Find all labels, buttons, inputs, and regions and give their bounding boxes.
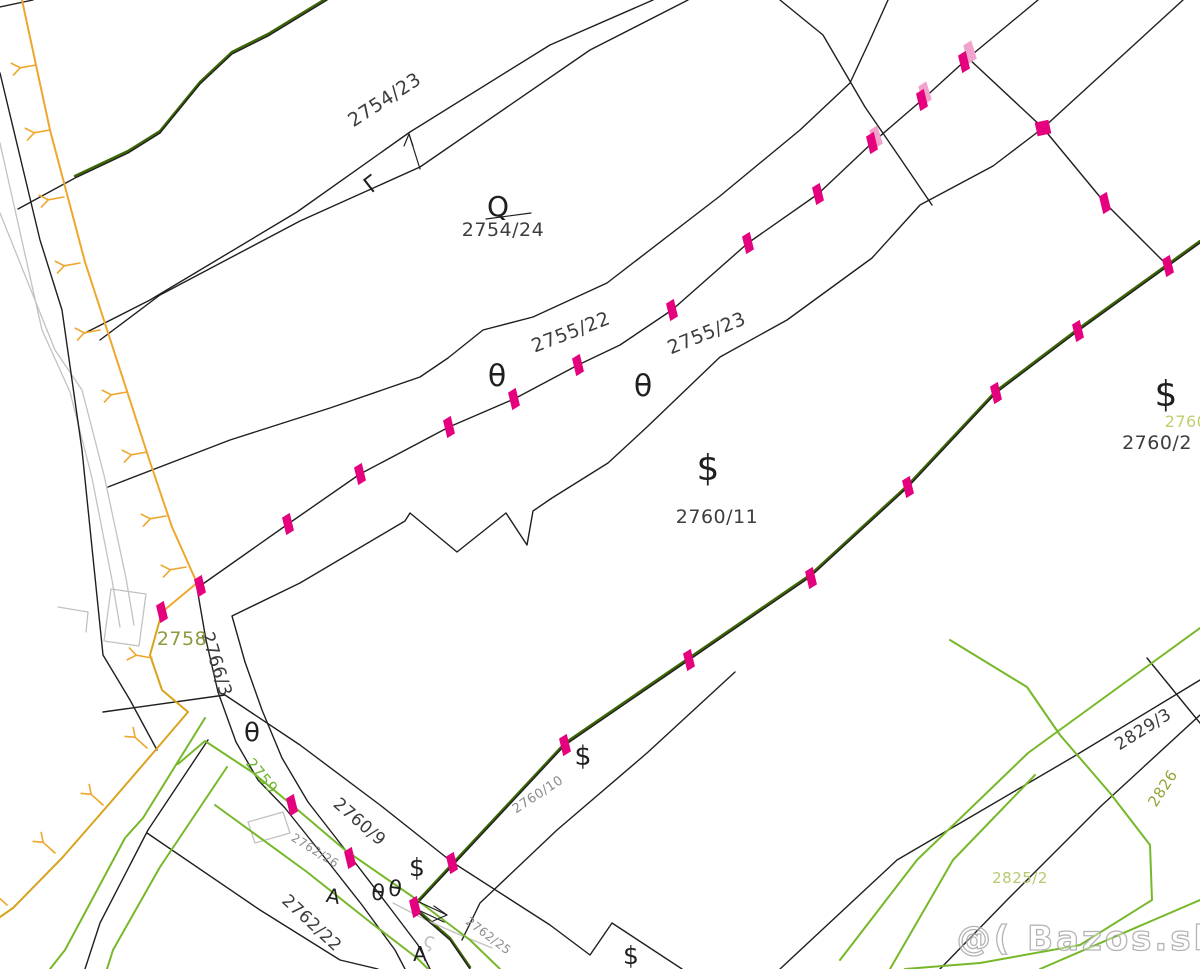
cadastral-map-view: θθθθθ$$$$$QΓAAς2754/232754/242755/222755… bbox=[0, 0, 1200, 969]
bazos-watermark: @( Bazos.sk bbox=[957, 919, 1200, 959]
dollar-symbol: $ bbox=[574, 741, 591, 772]
theta-symbol: θ bbox=[244, 718, 260, 748]
parcel-label-2754-24: 2754/24 bbox=[462, 219, 544, 241]
dollar-symbol: $ bbox=[623, 941, 639, 969]
parcel-label-2760-11: 2760/11 bbox=[676, 506, 758, 528]
parcel-label-2758: 2758 bbox=[157, 628, 207, 650]
parcel-label-2760-2: 2760/2 bbox=[1122, 432, 1192, 454]
parcel-label-2760: 2760 bbox=[1165, 412, 1200, 431]
theta-symbol: θ bbox=[488, 359, 506, 394]
dollar-symbol: $ bbox=[409, 853, 425, 882]
map-canvas[interactable]: θθθθθ$$$$$QΓAAς2754/232754/242755/222755… bbox=[0, 0, 1200, 969]
dollar-symbol: $ bbox=[1155, 374, 1178, 415]
dollar-symbol: $ bbox=[697, 448, 720, 489]
parcel-label-2825-2: 2825/2 bbox=[992, 869, 1048, 887]
survey-marker-junction bbox=[1035, 120, 1052, 137]
theta-symbol: θ bbox=[634, 369, 652, 404]
